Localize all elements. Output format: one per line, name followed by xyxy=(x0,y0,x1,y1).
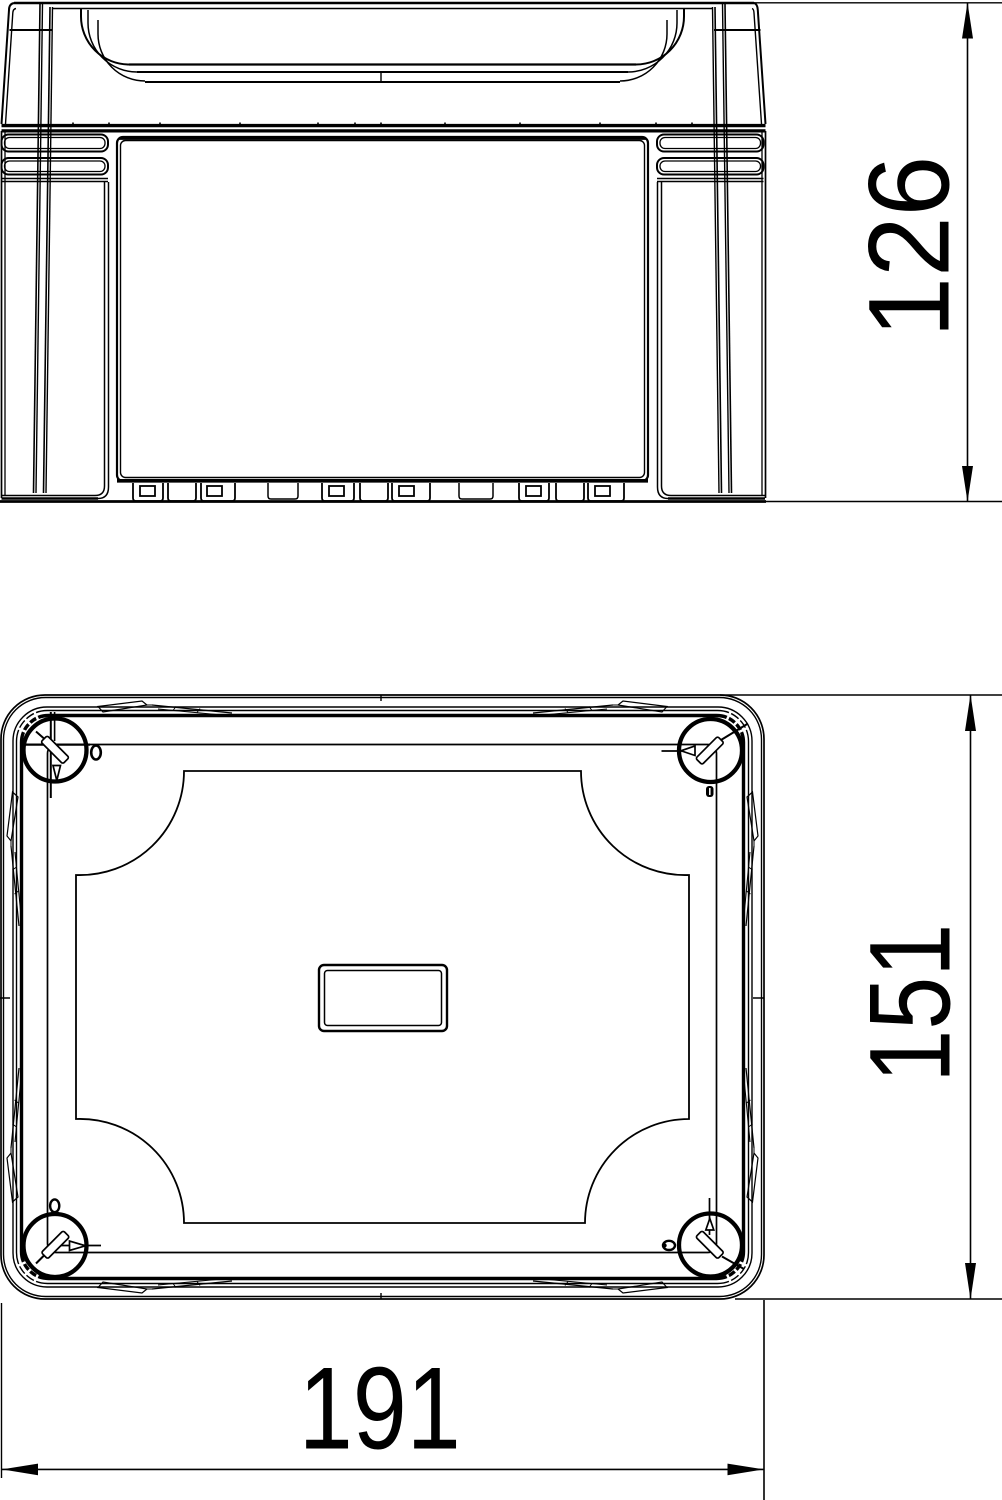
svg-text:191: 191 xyxy=(299,1343,461,1474)
svg-text:126: 126 xyxy=(846,156,974,338)
svg-text:151: 151 xyxy=(847,924,975,1083)
